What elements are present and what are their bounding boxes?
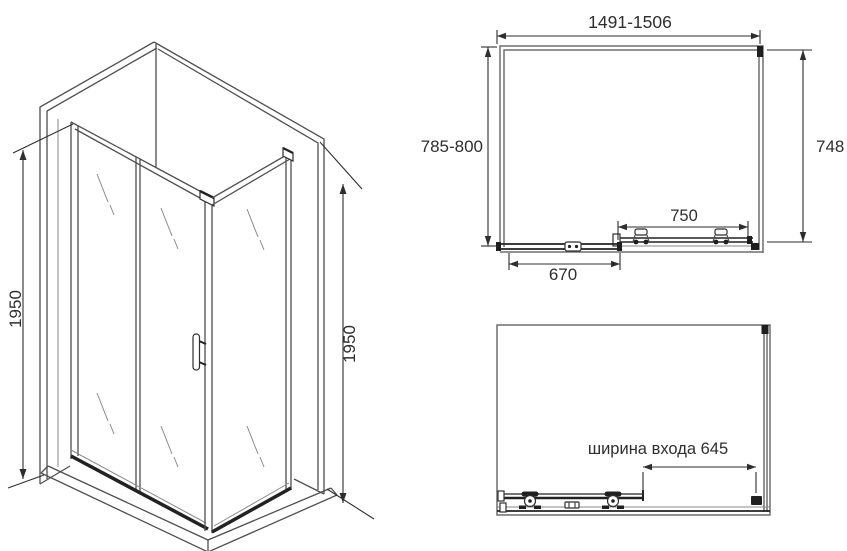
plan-view: 1491-1506 785-800 748 750 xyxy=(421,12,845,284)
width-dimension: 1491-1506 xyxy=(497,12,760,44)
glass-reflection-marks xyxy=(97,174,264,467)
shower-enclosure-technical-drawing: 1950 1950 xyxy=(0,0,847,551)
inner-depth-label: 748 xyxy=(816,137,844,156)
elevation-sliding-door xyxy=(498,490,643,509)
elevation-frame xyxy=(497,325,770,515)
fixed-panel-width-label: 670 xyxy=(549,265,577,284)
plan-walls xyxy=(500,46,763,253)
side-panel-glass-edge xyxy=(214,483,289,526)
roller-wheel xyxy=(519,492,541,510)
side-panel-wall-profile xyxy=(286,151,291,490)
width-dimension-label: 1491-1506 xyxy=(588,12,672,32)
back-walls xyxy=(40,42,324,494)
track-left-end xyxy=(500,503,506,512)
fixed-panel-dimension: 670 xyxy=(509,253,620,284)
height-dimension-right: 1950 xyxy=(320,142,374,519)
plan-panel-clamp xyxy=(565,242,581,251)
depth-dimension-label: 785-800 xyxy=(421,137,483,156)
entrance-width-label: ширина входа 645 xyxy=(588,440,728,458)
right-wall-inner-edge xyxy=(158,49,318,490)
left-frame-profile xyxy=(71,122,78,459)
sliding-door-assembly xyxy=(71,122,214,533)
corner-post xyxy=(205,194,212,533)
depth-dimension: 785-800 xyxy=(421,47,497,246)
door-width-label: 750 xyxy=(670,207,698,225)
track-clamp xyxy=(565,502,579,508)
plan-sliding-door xyxy=(613,229,759,250)
right-wall-bottom-edge xyxy=(294,479,324,494)
left-wall-outline xyxy=(40,42,154,484)
side-panel-top-rail xyxy=(212,153,290,205)
plan-corner-connector xyxy=(757,46,763,57)
height-right-label: 1950 xyxy=(340,325,359,363)
door-handle xyxy=(193,334,206,370)
side-panel xyxy=(212,148,293,532)
height-left-label: 1950 xyxy=(6,290,25,328)
shower-tray xyxy=(41,466,337,551)
entrance-width-dimension: ширина входа 645 xyxy=(588,440,756,494)
elevation-view: ширина входа 645 xyxy=(497,325,770,515)
track-right-end-stop xyxy=(751,496,762,505)
inner-depth-dimension: 748 xyxy=(767,50,844,242)
perspective-view: 1950 1950 xyxy=(6,42,374,551)
plan-fixed-panel xyxy=(496,242,622,251)
elevation-corner-tick xyxy=(762,325,769,334)
roller-wheel xyxy=(602,492,624,510)
right-wall-outline xyxy=(154,42,324,494)
door-left-end-cap xyxy=(498,491,504,501)
glass-divider xyxy=(136,157,140,492)
